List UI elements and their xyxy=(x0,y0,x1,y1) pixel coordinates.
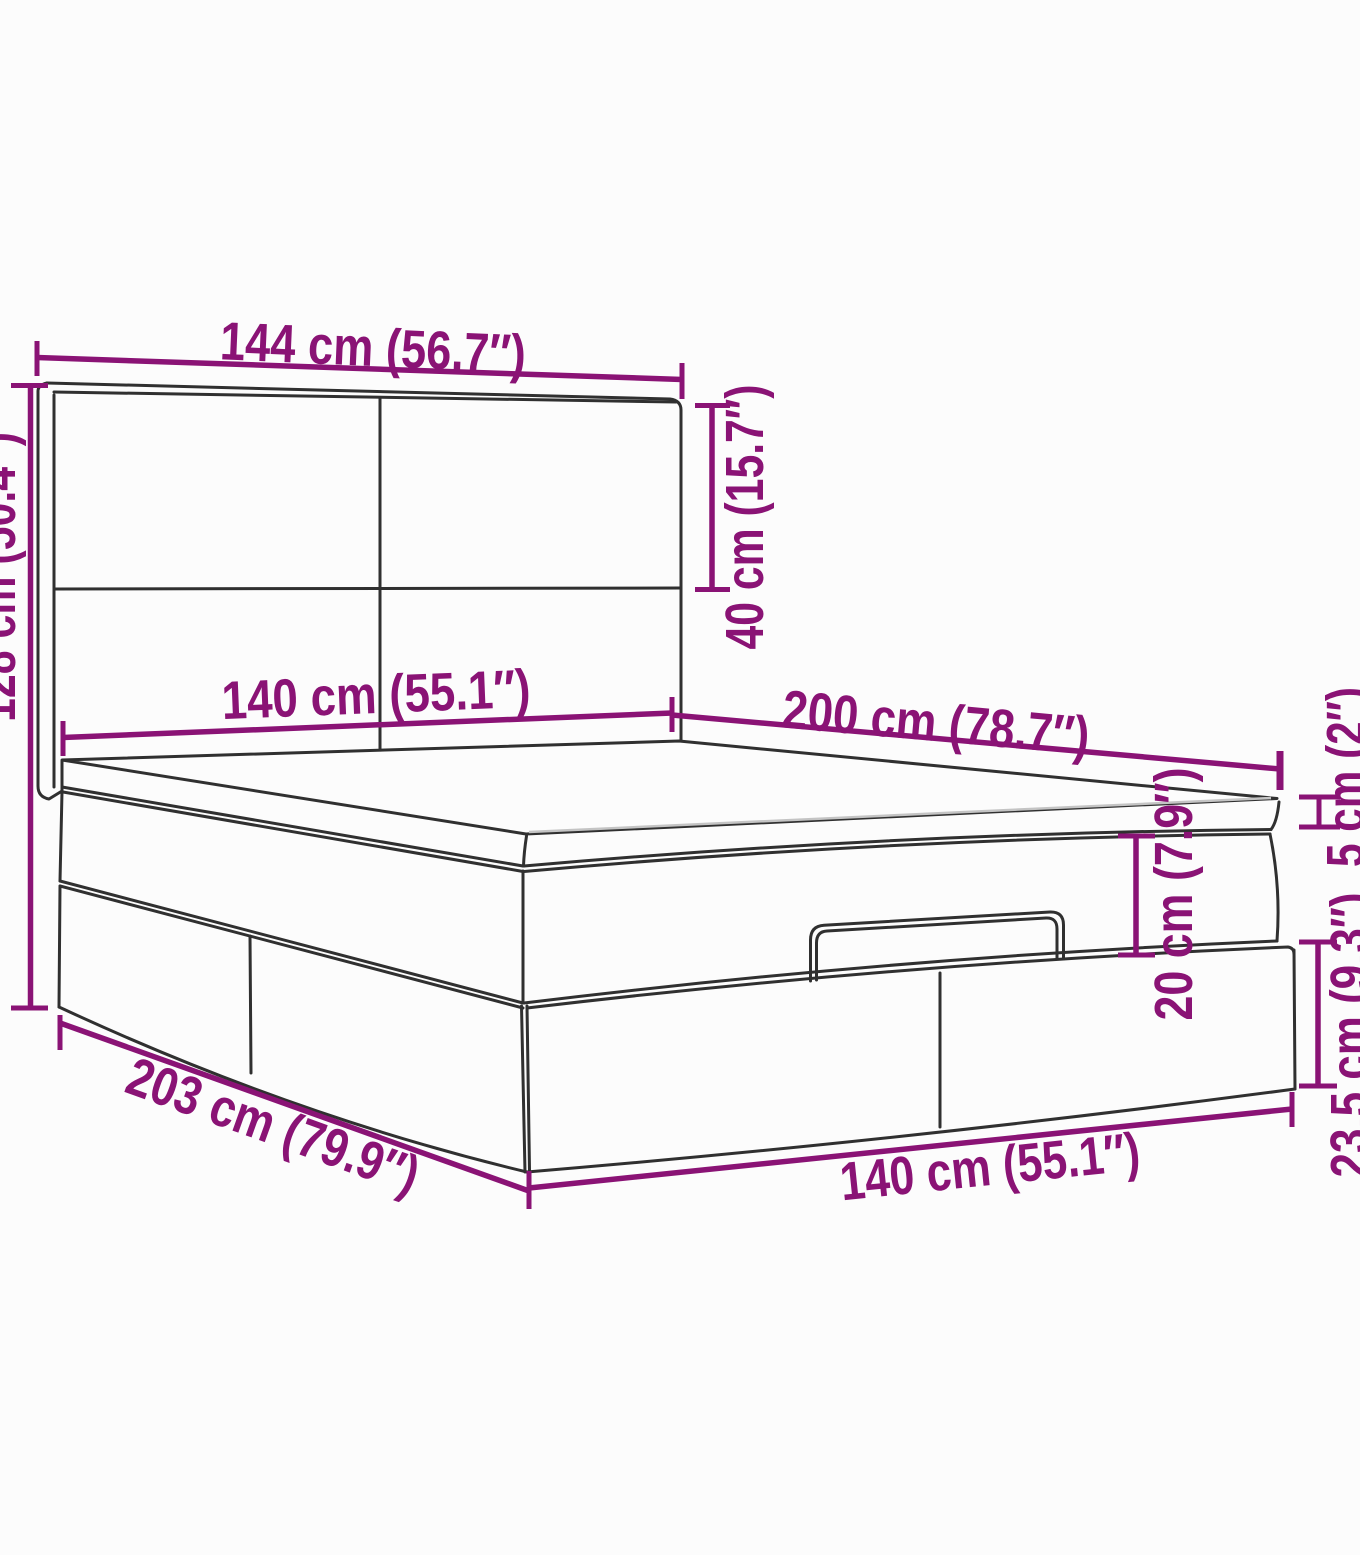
svg-text:140 cm (55.1″): 140 cm (55.1″) xyxy=(220,659,531,731)
svg-text:20 cm (7.9″): 20 cm (7.9″) xyxy=(1144,768,1204,1021)
svg-text:40 cm (15.7″): 40 cm (15.7″) xyxy=(715,385,775,650)
svg-text:5 cm (2″): 5 cm (2″) xyxy=(1316,687,1360,867)
svg-text:23.5 cm (9.3″): 23.5 cm (9.3″) xyxy=(1320,893,1360,1178)
svg-text:128 cm (50.4″): 128 cm (50.4″) xyxy=(0,432,27,722)
